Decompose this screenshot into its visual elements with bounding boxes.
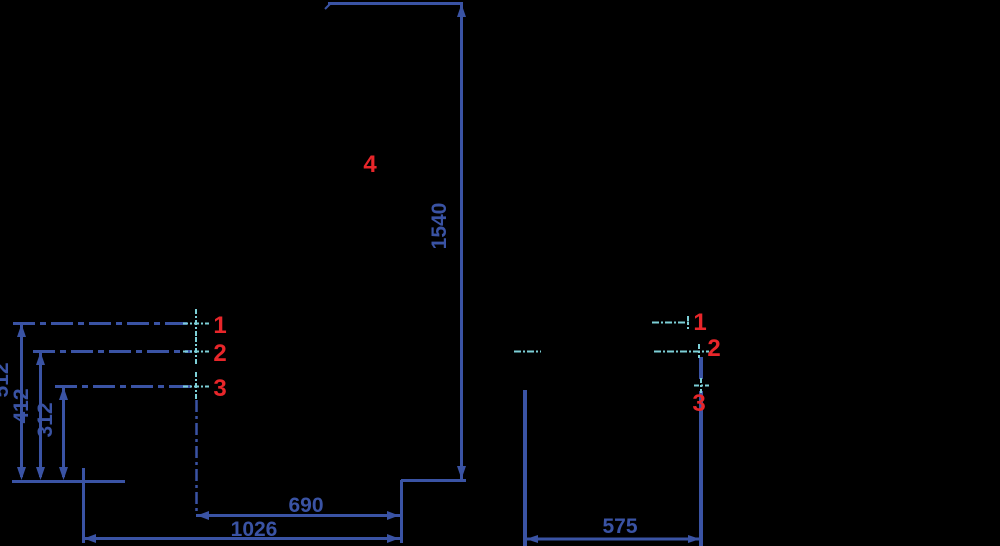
dim-690-arrow-right <box>387 511 399 520</box>
front-hole3-label: 3 <box>213 375 226 402</box>
dim-575-arrow-left <box>526 535 538 543</box>
front-point4-label: 4 <box>363 151 377 178</box>
cyan-marker-layer <box>183 309 709 401</box>
dimension-text-layer: 1540 512 412 312 690 1026 575 <box>0 203 638 541</box>
red-label-layer: 1 2 3 4 1 2 3 <box>213 151 720 417</box>
dim-1026-arrow-right <box>387 534 399 543</box>
arrow-layer <box>17 4 700 543</box>
mounting-dimension-drawing: 1540 512 412 312 690 1026 575 1 2 3 4 1 … <box>0 0 1000 546</box>
dim-1026-arrow-left <box>84 534 96 543</box>
top-reference-stub <box>325 4 330 9</box>
dim-1540-text: 1540 <box>428 203 451 250</box>
dim-1540-arrow-bottom <box>457 466 466 479</box>
dim-412-text: 412 <box>10 388 33 423</box>
dim-312-arrow-top <box>59 387 68 400</box>
front-hole2-label: 2 <box>213 340 226 367</box>
dim-690-arrow-left <box>197 511 209 520</box>
dim-1026-text: 1026 <box>231 518 278 541</box>
dim-575-arrow-right <box>688 535 700 543</box>
drawing-canvas: 1540 512 412 312 690 1026 575 1 2 3 4 1 … <box>0 0 1000 546</box>
side-hole3-label: 3 <box>692 390 705 417</box>
dim-412-arrow-bottom <box>36 467 45 480</box>
dim-512-arrow-top <box>17 324 26 337</box>
dim-690-text: 690 <box>288 494 323 517</box>
blue-line-layer <box>12 3 701 546</box>
hole3-cross-marker <box>183 372 209 401</box>
side-hole2-label: 2 <box>707 335 720 362</box>
hole2-cross-marker <box>183 337 209 366</box>
dim-312-text: 312 <box>34 402 57 437</box>
dim-1540-arrow-top <box>457 4 466 17</box>
dim-575-text: 575 <box>602 515 637 538</box>
hole1-cross-marker <box>183 309 209 338</box>
side-hole1-label: 1 <box>693 309 706 336</box>
dim-512-arrow-bottom <box>17 467 26 480</box>
front-hole1-label: 1 <box>213 312 226 339</box>
dim-412-arrow-top <box>36 352 45 365</box>
dim-312-arrow-bottom <box>59 467 68 480</box>
